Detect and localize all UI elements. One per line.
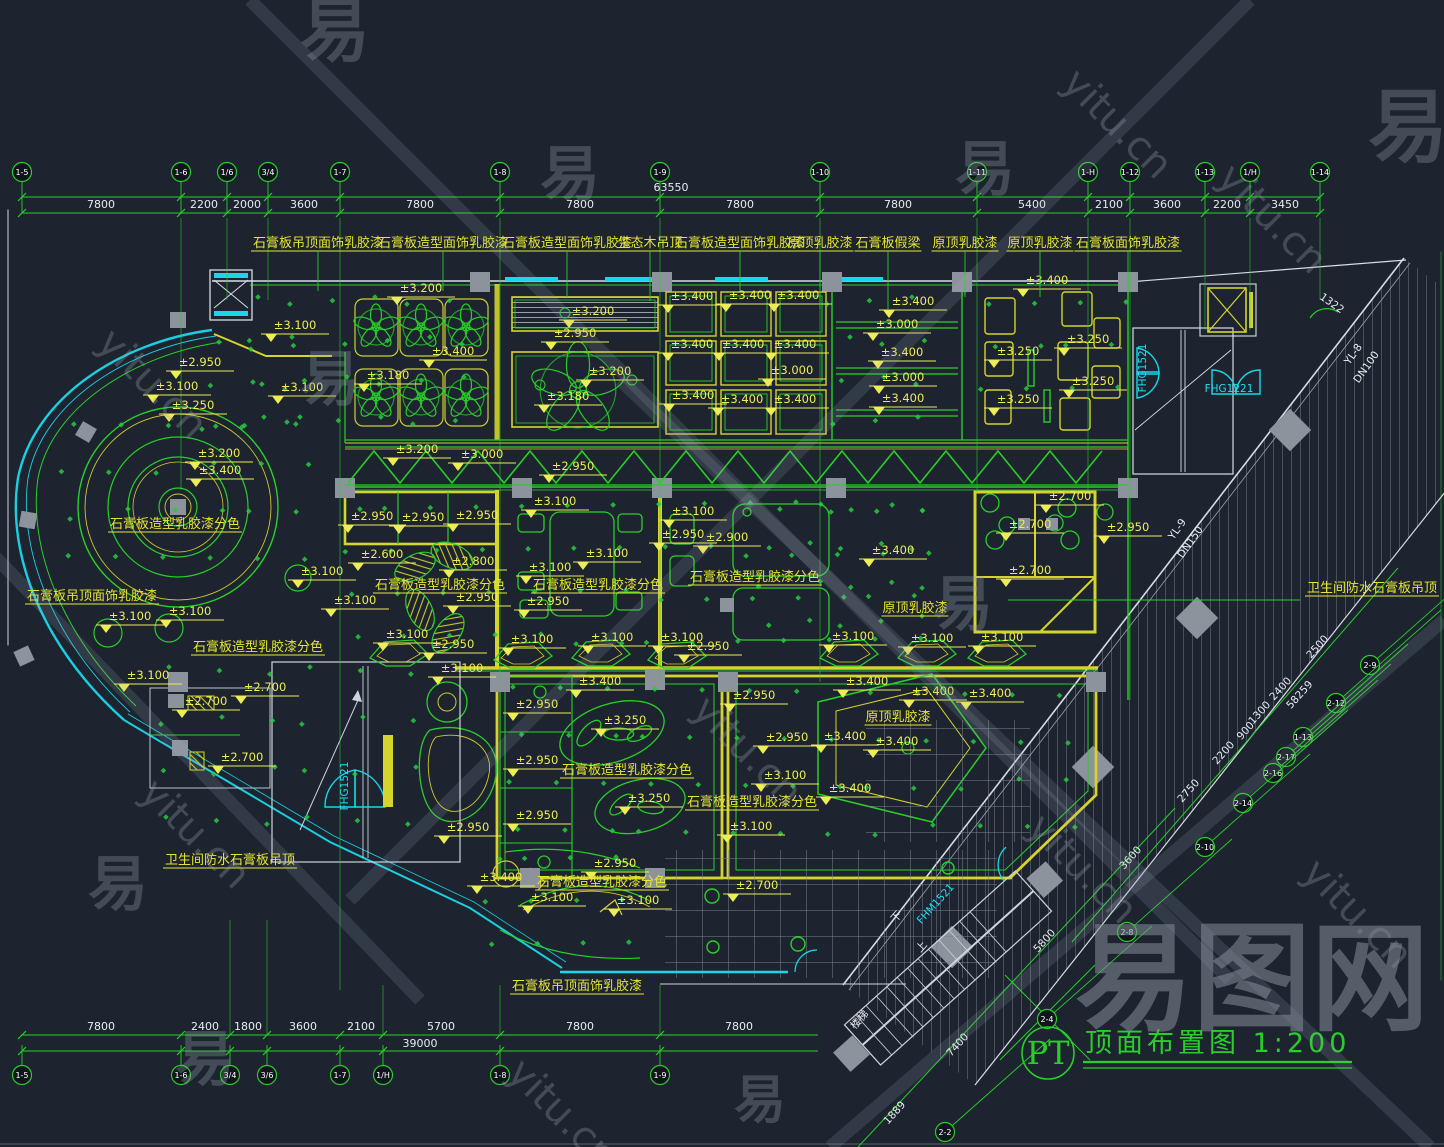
level-value: ±3.100 xyxy=(531,890,574,904)
grid-bubble-label: 3/6 xyxy=(261,1071,274,1080)
material-text: 石膏板造型乳胶漆分色 xyxy=(110,516,240,532)
level-value: ±2.950 xyxy=(552,459,595,473)
material-text: 原顶乳胶漆 xyxy=(865,709,930,725)
level-value: ±3.250 xyxy=(1067,332,1110,346)
level-value: ±3.400 xyxy=(829,781,872,795)
level-value: ±2.950 xyxy=(351,509,394,523)
level-value: ±3.000 xyxy=(882,370,925,384)
level-value: ±2.700 xyxy=(221,750,264,764)
level-value: ±3.400 xyxy=(671,337,714,351)
level-value: ±3.200 xyxy=(198,446,241,460)
grid-bubble-label: 1-7 xyxy=(333,1071,346,1080)
material-label: 石膏板造型乳胶漆分色 xyxy=(531,577,665,593)
level-value: ±2.600 xyxy=(361,547,404,561)
watermark-glyph: 易 xyxy=(734,1071,786,1131)
watermark-glyph: 易 xyxy=(1368,81,1444,174)
level-value: ±3.400 xyxy=(777,288,820,302)
watermark-glyph: 易 xyxy=(175,1025,235,1095)
annotation-text: FHG1521 xyxy=(339,762,351,811)
level-value: ±3.100 xyxy=(511,632,554,646)
level-value: ±3.400 xyxy=(672,388,715,402)
dim-value: 3600 xyxy=(1153,198,1181,211)
level-value: ±2.800 xyxy=(452,554,495,568)
level-value: ±3.200 xyxy=(400,281,443,295)
material-label: 石膏板造型乳胶漆分色 xyxy=(560,762,694,778)
level-value: ±2.950 xyxy=(516,808,559,822)
dim-value: 3600 xyxy=(290,198,318,211)
diagonal-grid-bubble-label: 2-4 xyxy=(1040,1015,1053,1024)
level-value: ±3.400 xyxy=(1026,273,1069,287)
dim-value: 7800 xyxy=(406,198,434,211)
title-tag: PT xyxy=(1027,1034,1071,1072)
level-value: ±3.100 xyxy=(586,546,629,560)
grid-bubble-label: 1/H xyxy=(376,1071,390,1080)
dim-value: 7800 xyxy=(566,1020,594,1033)
level-value: ±2.950 xyxy=(402,510,445,524)
dim-value: 2100 xyxy=(1095,198,1123,211)
material-text: 石膏板面饰乳胶漆 xyxy=(1076,235,1180,251)
level-value: ±2.950 xyxy=(527,594,570,608)
material-label: 石膏板造型乳胶漆分色 xyxy=(688,569,822,585)
material-text: 卫生间防水石膏板吊顶 xyxy=(1307,580,1437,596)
level-value: ±3.400 xyxy=(892,294,935,308)
level-value: ±2.950 xyxy=(179,355,222,369)
level-value: ±2.700 xyxy=(185,694,228,708)
material-text: 石膏板造型乳胶漆分色 xyxy=(690,569,820,585)
material-text: 原顶乳胶漆 xyxy=(787,235,852,251)
diagonal-grid-bubble-label: 2-10 xyxy=(1196,843,1214,852)
level-value: ±3.400 xyxy=(729,288,772,302)
level-value: ±2.950 xyxy=(516,753,559,767)
level-value: ±3.180 xyxy=(367,368,410,382)
level-value: ±3.100 xyxy=(730,819,773,833)
level-value: ±3.400 xyxy=(824,729,867,743)
level-value: ±3.100 xyxy=(386,627,429,641)
level-value: ±2.950 xyxy=(1107,520,1150,534)
material-text: 石膏板造型乳胶漆分色 xyxy=(533,577,663,593)
grid-bubble-label: 1-7 xyxy=(333,168,346,177)
level-value: ±3.250 xyxy=(997,392,1040,406)
dim-value: 2000 xyxy=(233,198,261,211)
material-label: 石膏板造型乳胶漆分色 xyxy=(108,516,242,532)
level-value: ±3.400 xyxy=(721,392,764,406)
level-value: ±3.100 xyxy=(274,318,317,332)
dim-value: 2200 xyxy=(190,198,218,211)
level-value: ±3.400 xyxy=(774,337,817,351)
level-value: ±3.250 xyxy=(997,344,1040,358)
dim-value: 3600 xyxy=(289,1020,317,1033)
material-text: 石膏板吊顶面饰乳胶漆 xyxy=(253,235,383,251)
level-value: ±3.100 xyxy=(127,668,170,682)
level-value: ±3.200 xyxy=(396,442,439,456)
material-text: 石膏板造型乳胶漆分色 xyxy=(193,639,323,655)
material-text: 石膏板造型乳胶漆分色 xyxy=(562,762,692,778)
material-text: 石膏板造型乳胶漆分色 xyxy=(375,577,505,593)
material-text: 石膏板造型面饰乳胶漆 xyxy=(675,235,805,251)
level-value: ±2.950 xyxy=(432,637,475,651)
material-label: 石膏板造型乳胶漆分色 xyxy=(535,874,669,890)
material-label: 石膏板造型乳胶漆分色 xyxy=(373,577,507,593)
grid-bubble-label: 1-10 xyxy=(811,168,829,177)
dim-total: 63550 xyxy=(654,181,689,194)
dim-value: 2100 xyxy=(347,1020,375,1033)
level-value: ±2.950 xyxy=(687,639,730,653)
dim-total: 39000 xyxy=(403,1037,438,1050)
dim-value: 1800 xyxy=(234,1020,262,1033)
material-label: 卫生间防水石膏板吊顶 xyxy=(1305,580,1439,596)
level-value: ±3.100 xyxy=(441,661,484,675)
material-text: 石膏板吊顶面饰乳胶漆 xyxy=(512,978,642,994)
level-value: ±3.100 xyxy=(617,893,660,907)
dim-value: 7800 xyxy=(87,1020,115,1033)
level-value: ±2.700 xyxy=(1049,489,1092,503)
level-value: ±3.100 xyxy=(534,494,577,508)
dim-value: 5700 xyxy=(427,1020,455,1033)
grid-bubble-label: 1-9 xyxy=(653,1071,666,1080)
grid-bubble-label: 1-6 xyxy=(174,168,187,177)
level-value: ±3.100 xyxy=(672,504,715,518)
grid-bubble-label: 1-8 xyxy=(493,168,506,177)
level-value: ±3.400 xyxy=(846,674,889,688)
grid-bubble-label: 1-5 xyxy=(15,168,28,177)
level-value: ±3.400 xyxy=(872,543,915,557)
level-value: ±3.400 xyxy=(671,289,714,303)
level-value: ±3.000 xyxy=(771,363,814,377)
annotation-text: FHG1521 xyxy=(1137,344,1149,393)
material-label: 石膏板造型乳胶漆分色 xyxy=(191,639,325,655)
cad-ceiling-plan-screenshot: 1-51-61/63/41-71-81-91-101-111-H1-121-13… xyxy=(0,0,1444,1147)
level-value: ±2.700 xyxy=(1009,563,1052,577)
level-value: ±3.000 xyxy=(461,447,504,461)
watermark-glyph: 易 xyxy=(88,850,148,920)
grid-bubble-label: 1-9 xyxy=(653,168,666,177)
level-value: ±3.250 xyxy=(604,713,647,727)
grid-bubble-label: 1-14 xyxy=(1311,168,1329,177)
material-text: 石膏板造型乳胶漆分色 xyxy=(537,874,667,890)
level-value: ±3.400 xyxy=(774,392,817,406)
dim-value: 7800 xyxy=(725,1020,753,1033)
level-value: ±3.400 xyxy=(882,391,925,405)
level-value: ±3.100 xyxy=(169,604,212,618)
dim-value: 7800 xyxy=(87,198,115,211)
level-value: ±3.400 xyxy=(722,337,765,351)
level-value: ±2.700 xyxy=(1009,517,1052,531)
material-label: 石膏板造型乳胶漆分色 xyxy=(685,794,819,810)
material-label: 石膏板吊顶面饰乳胶漆 xyxy=(510,978,644,994)
watermark-glyph: 易 xyxy=(300,0,370,72)
level-value: ±3.400 xyxy=(480,870,523,884)
level-value: ±3.400 xyxy=(969,686,1012,700)
material-text: 石膏板假梁 xyxy=(855,235,920,251)
material-text: 原顶乳胶漆 xyxy=(932,235,997,251)
level-value: ±3.200 xyxy=(572,304,615,318)
grid-bubble-label: 3/4 xyxy=(262,168,275,177)
dim-value: 7800 xyxy=(726,198,754,211)
watermark-glyph: 易 xyxy=(300,345,360,415)
grid-bubble-label: 1/6 xyxy=(221,168,234,177)
level-value: ±2.700 xyxy=(736,878,779,892)
watermark-glyph: 易 xyxy=(955,135,1015,205)
level-value: ±2.700 xyxy=(244,680,287,694)
grid-bubble-label: 1-13 xyxy=(1196,168,1214,177)
material-text: 生态木吊顶 xyxy=(617,236,682,251)
level-value: ±3.100 xyxy=(832,629,875,643)
level-value: ±3.400 xyxy=(876,734,919,748)
level-value: ±2.950 xyxy=(733,688,776,702)
watermark-brand: 易图网 xyxy=(1075,910,1429,1048)
level-value: ±3.000 xyxy=(876,317,919,331)
ceiling-plan-canvas: 1-51-61/63/41-71-81-91-101-111-H1-121-13… xyxy=(0,0,1444,1147)
watermark-glyph: 易 xyxy=(540,140,600,210)
level-value: ±3.400 xyxy=(432,344,475,358)
watermark-glyph: 易 xyxy=(933,570,993,640)
level-value: ±3.250 xyxy=(1072,374,1115,388)
level-value: ±3.400 xyxy=(199,463,242,477)
grid-bubble-label: 1-5 xyxy=(15,1071,28,1080)
level-value: ±3.400 xyxy=(579,674,622,688)
level-value: ±2.950 xyxy=(594,856,637,870)
level-value: ±3.100 xyxy=(529,560,572,574)
level-value: ±3.250 xyxy=(628,791,671,805)
dim-value: 7800 xyxy=(884,198,912,211)
material-label: 原顶乳胶漆 xyxy=(865,709,932,725)
level-value: ±2.950 xyxy=(662,527,705,541)
material-text: 石膏板造型面饰乳胶漆 xyxy=(502,235,632,251)
level-value: ±3.100 xyxy=(301,564,344,578)
annotation-text: FHG1221 xyxy=(1205,383,1254,395)
level-value: ±3.100 xyxy=(109,609,152,623)
level-value: ±2.950 xyxy=(456,508,499,522)
level-value: ±3.180 xyxy=(547,389,590,403)
level-value: ±2.950 xyxy=(447,820,490,834)
level-value: ±3.100 xyxy=(334,593,377,607)
diagonal-grid-bubble-label: 2-2 xyxy=(938,1128,951,1137)
